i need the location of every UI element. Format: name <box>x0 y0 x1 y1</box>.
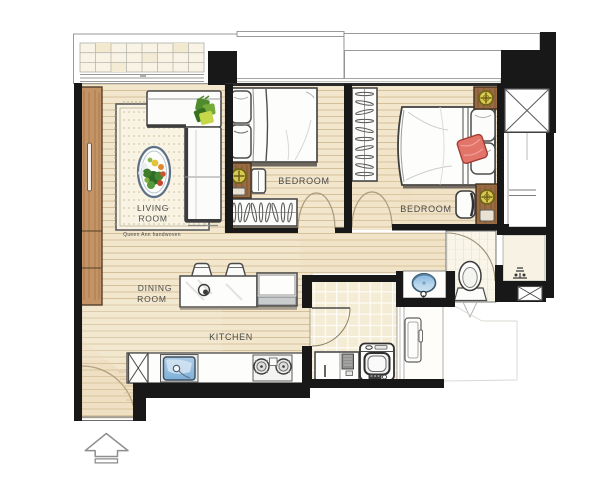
svg-text:ROOM: ROOM <box>137 294 167 304</box>
svg-text:BEDROOM: BEDROOM <box>278 176 329 186</box>
svg-text:LIVING: LIVING <box>137 203 169 213</box>
svg-text:Queen Ann handwoven: Queen Ann handwoven <box>123 232 181 238</box>
svg-text:BEDROOM: BEDROOM <box>400 204 451 214</box>
svg-text:KITCHEN: KITCHEN <box>209 332 253 342</box>
svg-text:DINING: DINING <box>138 283 173 293</box>
svg-text:ROOM: ROOM <box>138 214 167 224</box>
